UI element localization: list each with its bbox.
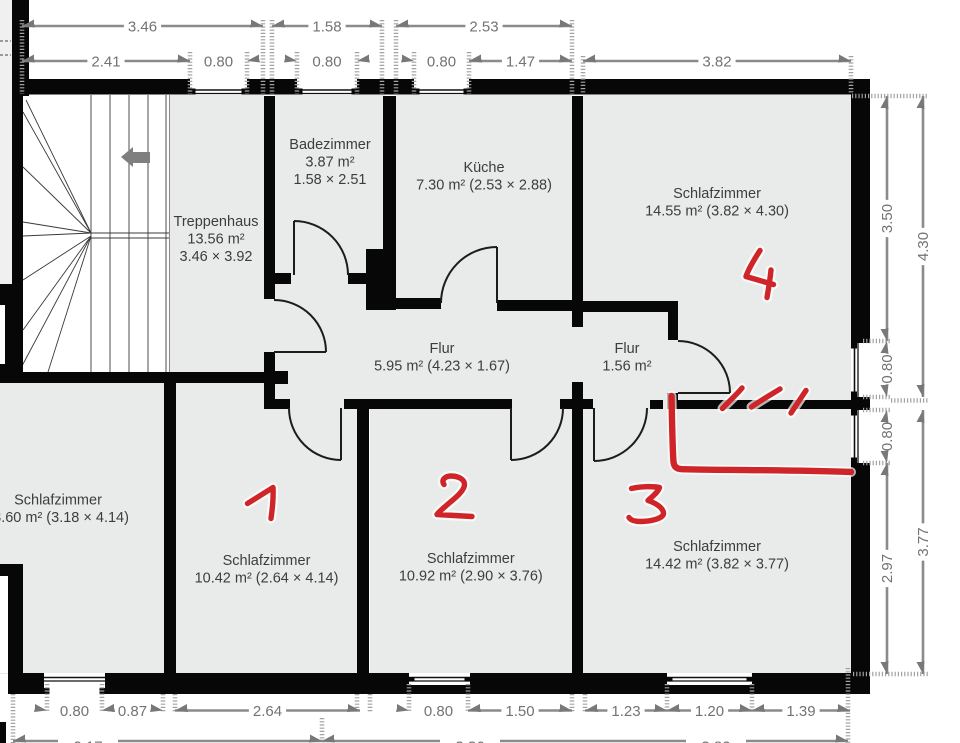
svg-text:0.80: 0.80: [879, 422, 896, 451]
svg-text:1.47: 1.47: [506, 54, 535, 71]
svg-text:Schlafzimmer: Schlafzimmer: [673, 539, 761, 555]
svg-text:3.87 m²: 3.87 m²: [305, 155, 354, 171]
svg-text:0.80: 0.80: [427, 54, 456, 71]
svg-text:Treppenhaus: Treppenhaus: [174, 214, 259, 230]
svg-text:3.50: 3.50: [879, 204, 896, 233]
svg-text:0.87: 0.87: [118, 703, 147, 720]
svg-text:5.95 m² (4.23 × 1.67): 5.95 m² (4.23 × 1.67): [374, 359, 510, 375]
svg-text:1.50: 1.50: [505, 703, 534, 720]
svg-text:Schlafzimmer: Schlafzimmer: [427, 551, 515, 567]
svg-text:0.80: 0.80: [312, 54, 341, 71]
svg-text:1.23: 1.23: [611, 703, 640, 720]
svg-text:1.56 m²: 1.56 m²: [602, 359, 651, 375]
svg-text:7.30 m² (2.53 × 2.88): 7.30 m² (2.53 × 2.88): [416, 178, 552, 194]
svg-text:0.80: 0.80: [204, 54, 233, 71]
svg-text:1.20: 1.20: [695, 703, 724, 720]
svg-text:Badezimmer: Badezimmer: [289, 137, 371, 153]
svg-text:Schlafzimmer: Schlafzimmer: [14, 493, 102, 509]
svg-text:3.46: 3.46: [128, 19, 157, 36]
svg-text:13.56 m²: 13.56 m²: [187, 232, 244, 248]
svg-text:Flur: Flur: [615, 341, 640, 357]
svg-text:1.39: 1.39: [786, 703, 815, 720]
svg-text:10.92 m² (2.90 × 3.76): 10.92 m² (2.90 × 3.76): [399, 569, 543, 585]
svg-text:Flur: Flur: [430, 341, 455, 357]
svg-text:3.77: 3.77: [915, 527, 932, 556]
svg-text:10.42 m² (2.64 × 4.14): 10.42 m² (2.64 × 4.14): [195, 571, 339, 587]
svg-text:Schlafzimmer: Schlafzimmer: [223, 553, 311, 569]
svg-text:Schlafzimmer: Schlafzimmer: [673, 186, 761, 202]
svg-text:0.80: 0.80: [424, 703, 453, 720]
svg-text:Küche: Küche: [463, 160, 504, 176]
svg-text:0.80: 0.80: [879, 354, 896, 383]
svg-text:3.82: 3.82: [701, 739, 730, 743]
svg-text:1.58: 1.58: [312, 19, 341, 36]
svg-text:1.58 × 2.51: 1.58 × 2.51: [294, 172, 367, 188]
svg-text:14.42 m² (3.82 × 3.77): 14.42 m² (3.82 × 3.77): [645, 557, 789, 573]
svg-text:3.36: 3.36: [455, 739, 484, 743]
svg-text:4.30: 4.30: [915, 232, 932, 261]
svg-text:2.41: 2.41: [91, 54, 120, 71]
svg-text:14.55 m² (3.82 × 4.30): 14.55 m² (3.82 × 4.30): [645, 204, 789, 220]
svg-text:2.97: 2.97: [879, 554, 896, 583]
svg-text:2.64: 2.64: [253, 703, 282, 720]
svg-text:2.53: 2.53: [469, 19, 498, 36]
svg-text:3.82: 3.82: [702, 54, 731, 71]
svg-text:3.46 × 3.92: 3.46 × 3.92: [180, 249, 253, 265]
svg-text:2.17: 2.17: [73, 739, 102, 743]
svg-text:13.60 m² (3.18 × 4.14): 13.60 m² (3.18 × 4.14): [0, 510, 129, 526]
svg-text:0.80: 0.80: [60, 703, 89, 720]
